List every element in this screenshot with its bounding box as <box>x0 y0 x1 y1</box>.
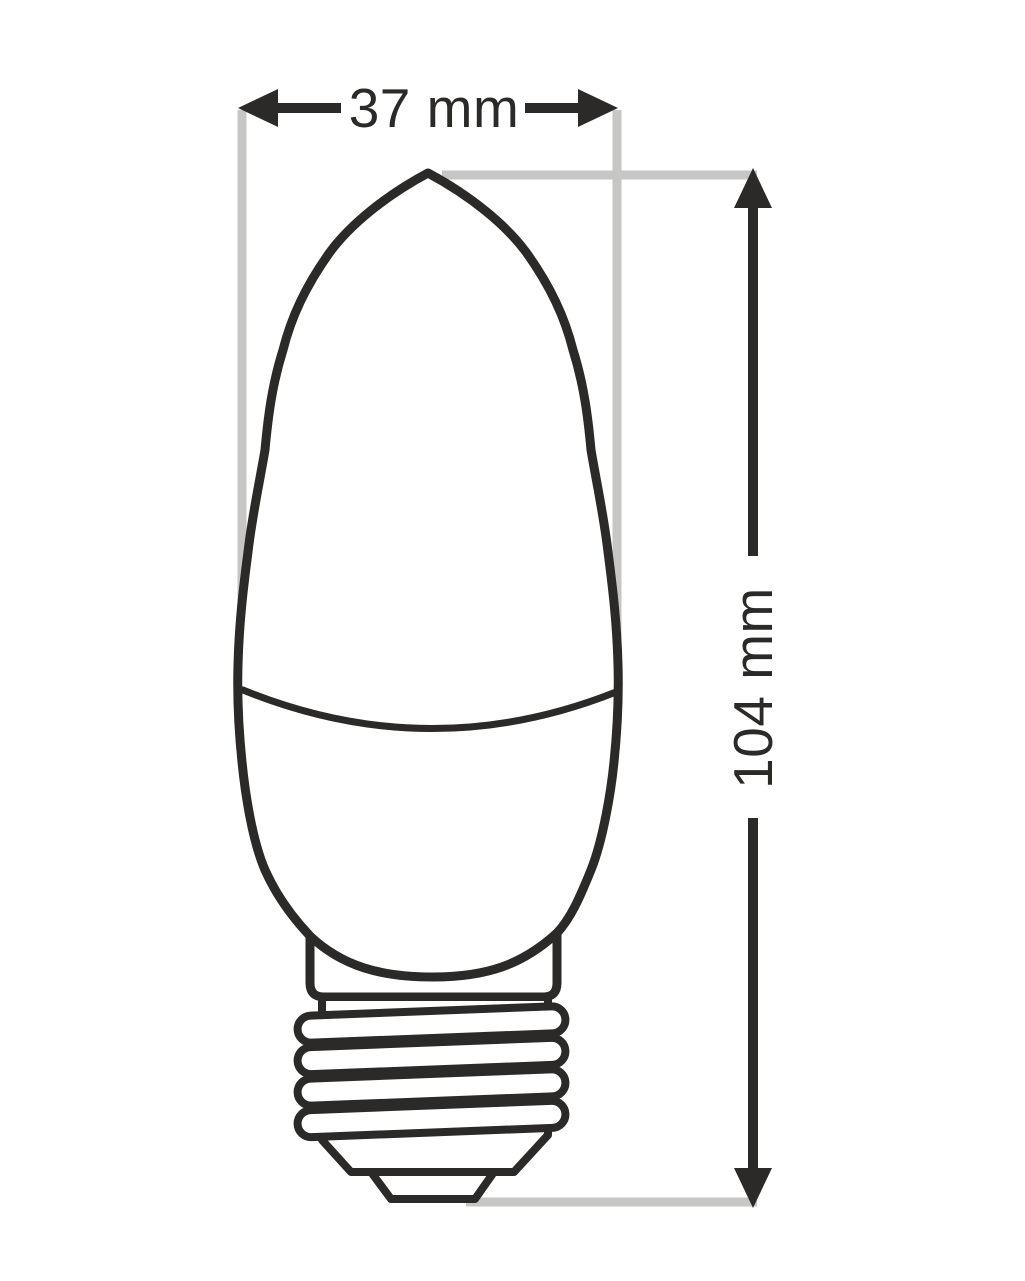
bulb <box>238 173 619 977</box>
height-label: 104 mm <box>722 587 784 789</box>
base-contact-foot <box>371 1172 494 1199</box>
diagram-canvas: 37 mm 104 mm <box>0 0 1025 1281</box>
width-arrow-right-icon <box>578 89 618 127</box>
bulb-dimension-drawing: 37 mm 104 mm <box>0 0 1025 1281</box>
screw-threads <box>297 1006 566 1138</box>
height-dimension: 104 mm <box>713 168 793 1208</box>
thread-4 <box>297 1100 566 1137</box>
width-dimension: 37 mm <box>238 64 618 148</box>
bulb-outline <box>238 173 619 977</box>
width-label: 37 mm <box>349 77 520 139</box>
